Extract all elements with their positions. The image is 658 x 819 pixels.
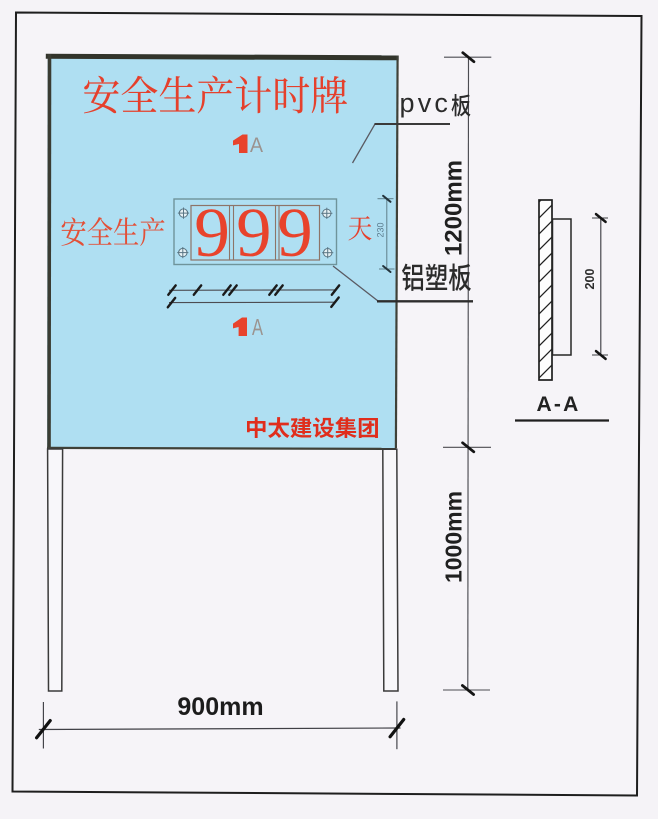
svg-text:A-A: A-A [537,393,581,416]
svg-text:1200mm: 1200mm [441,160,468,256]
svg-text:1000mm: 1000mm [441,491,467,583]
svg-text:200: 200 [583,269,597,290]
svg-text:230: 230 [376,222,386,237]
svg-text:900mm: 900mm [177,693,263,721]
svg-text:pvc: pvc [400,88,452,118]
